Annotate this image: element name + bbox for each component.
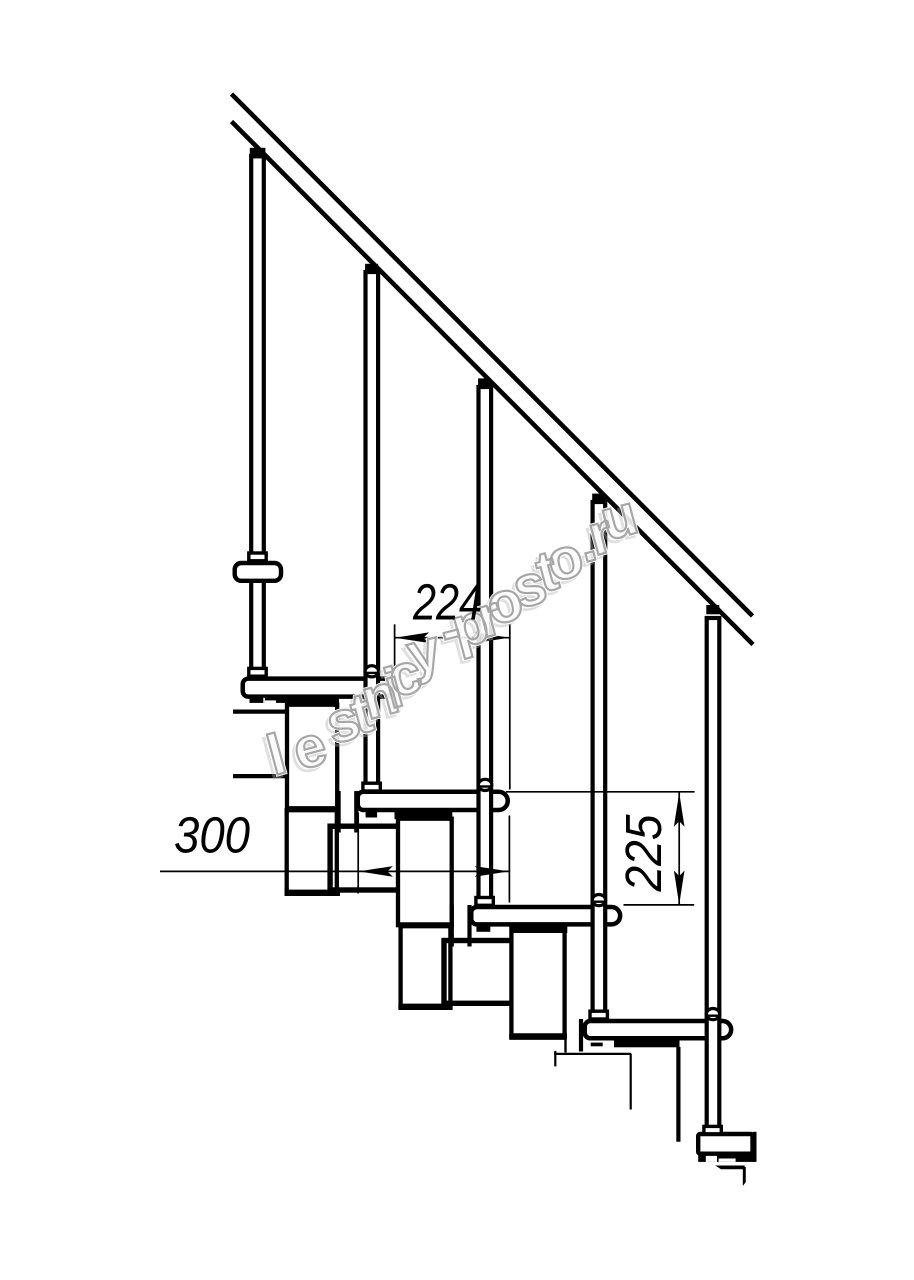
svg-text:300: 300 [174,807,250,864]
svg-text:224: 224 [412,574,482,631]
svg-text:225: 225 [615,814,672,892]
